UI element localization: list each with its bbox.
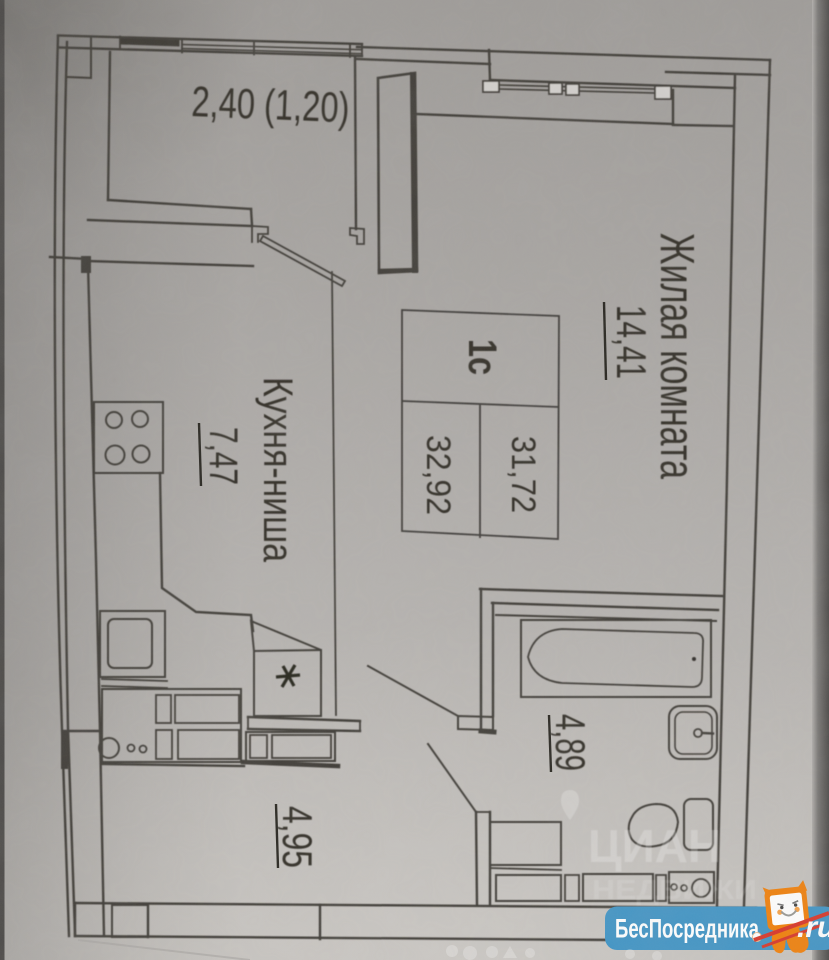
svg-text:32,92: 32,92 — [419, 435, 457, 515]
svg-text:4,95: 4,95 — [274, 806, 321, 868]
svg-text:7,47: 7,47 — [201, 427, 245, 485]
svg-text:ЦИАН: ЦИАН — [588, 820, 721, 872]
svg-text:НЕДВИЖИ: НЕДВИЖИ — [592, 874, 757, 905]
svg-text:Кухня-ниша: Кухня-ниша — [255, 377, 302, 563]
svg-text:31,72: 31,72 — [504, 436, 542, 513]
svg-text:2,40 (1,20): 2,40 (1,20) — [191, 78, 351, 132]
svg-text:1с: 1с — [460, 339, 504, 375]
svg-text:14,41: 14,41 — [608, 305, 655, 379]
svg-text:Жилая комната: Жилая комната — [650, 233, 703, 479]
svg-text:.ru: .ru — [797, 911, 829, 944]
svg-text:4,89: 4,89 — [547, 714, 594, 771]
svg-text:БесПосредника: БесПосредника — [615, 914, 760, 944]
